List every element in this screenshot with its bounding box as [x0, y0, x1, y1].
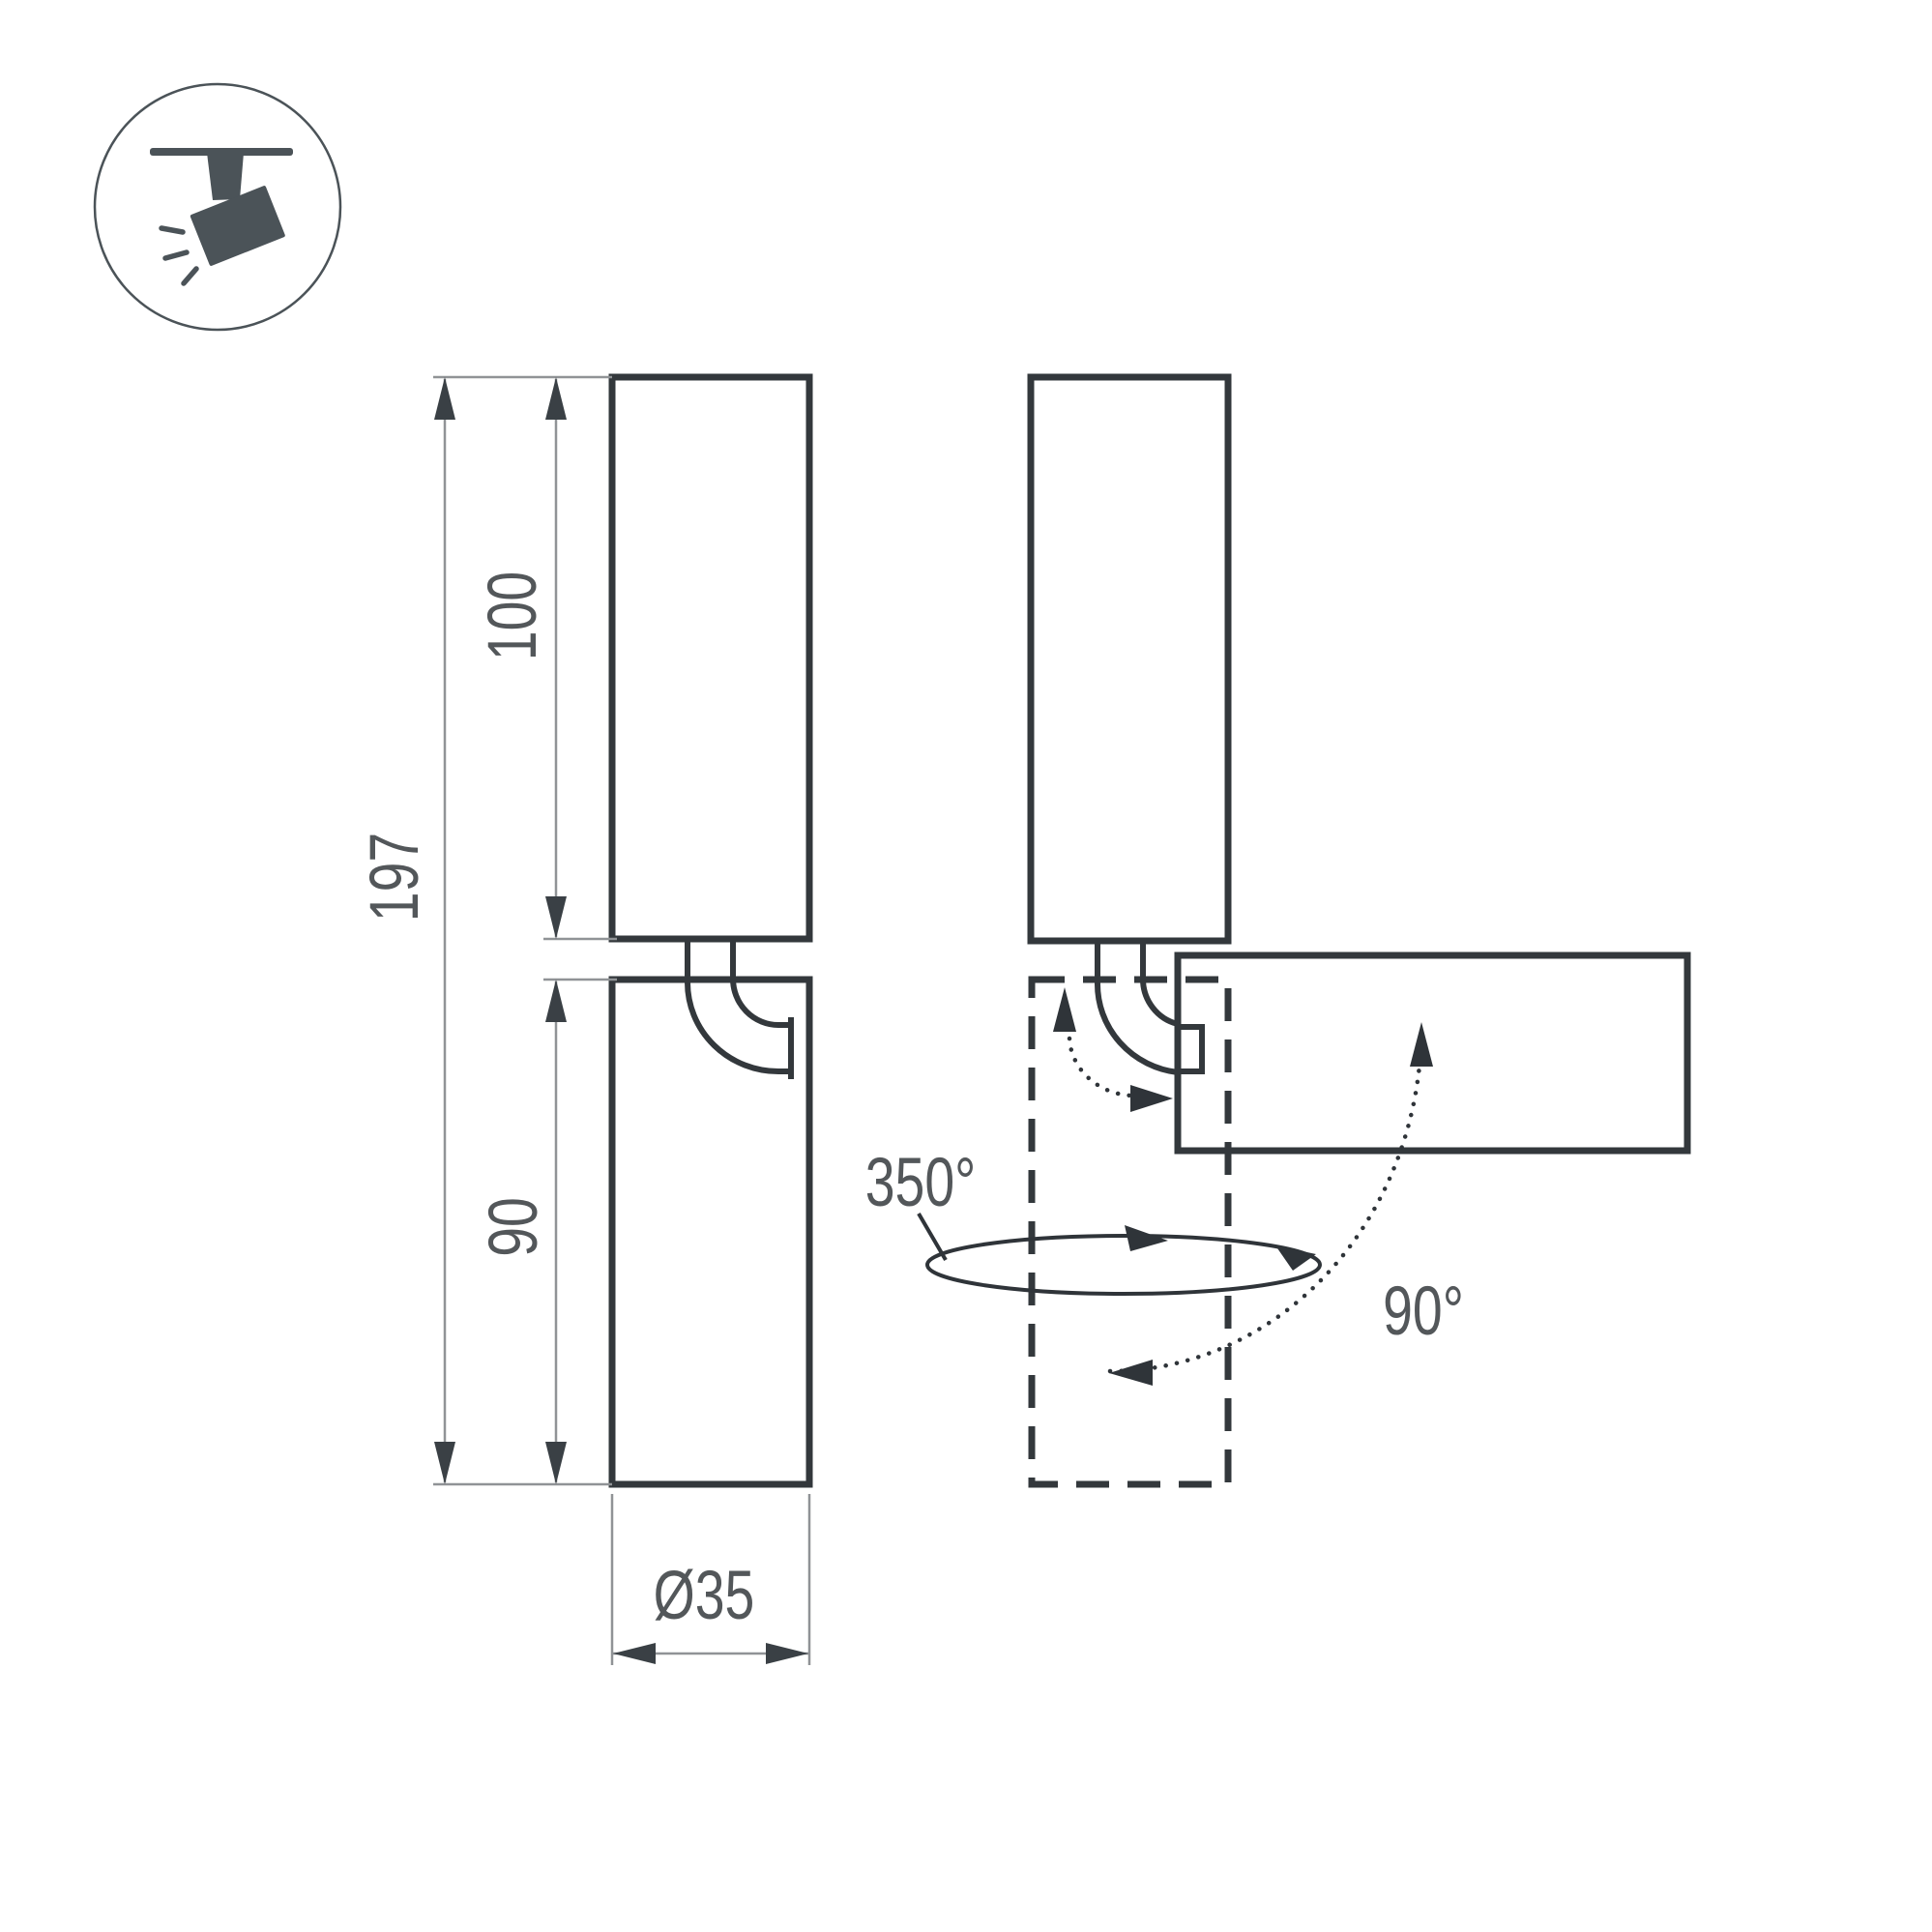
arrowhead-icon — [766, 1643, 808, 1664]
arrowhead-icon — [545, 1442, 567, 1484]
spot-head-icon — [190, 186, 285, 267]
arrowhead-icon — [434, 377, 455, 420]
tilt-arrowhead-icon — [1053, 987, 1076, 1032]
rotation-annotations: 350° 90° — [865, 987, 1464, 1386]
front-upper-body — [612, 377, 809, 939]
tilt-rotation-arc — [1110, 1028, 1421, 1371]
tilt-arrowhead-icon — [1410, 1022, 1433, 1067]
dim-diameter-label: Ø35 — [654, 1557, 755, 1633]
side-elbow-socket — [1178, 1027, 1202, 1071]
tilt-arrowhead-icon — [1130, 1085, 1173, 1112]
side-upper-body — [1031, 377, 1228, 941]
arrowhead-icon — [545, 980, 567, 1022]
front-lower-body — [612, 980, 809, 1484]
side-head-tilted — [1178, 955, 1687, 1151]
drawing-page: 197 100 90 Ø35 350° 90° — [0, 0, 1932, 1932]
arrowhead-icon — [434, 1442, 455, 1484]
dim-lower-section-label: 90 — [475, 1197, 551, 1257]
side-elbow-outer — [1098, 941, 1178, 1072]
tilt-arrowhead-icon — [1109, 1360, 1153, 1386]
arrowhead-icon — [545, 896, 567, 939]
front-view — [612, 377, 809, 1484]
arrowhead-icon — [545, 377, 567, 420]
icon-stem — [207, 153, 244, 200]
arrowhead-icon — [613, 1643, 656, 1664]
light-rays-icon — [161, 228, 196, 283]
pan-rotation-ellipse — [927, 1236, 1320, 1294]
pan-rotation-label: 350° — [865, 1144, 977, 1220]
track-spotlight-icon — [95, 84, 340, 330]
front-view-dimensions: 197 100 90 Ø35 — [356, 377, 809, 1665]
technical-drawing: 197 100 90 Ø35 350° 90° — [0, 0, 1932, 1932]
dim-upper-section-label: 100 — [474, 571, 550, 660]
tilt-rotation-label: 90° — [1383, 1273, 1464, 1349]
side-view — [1031, 377, 1687, 1484]
dim-total-height-label: 197 — [356, 833, 432, 922]
